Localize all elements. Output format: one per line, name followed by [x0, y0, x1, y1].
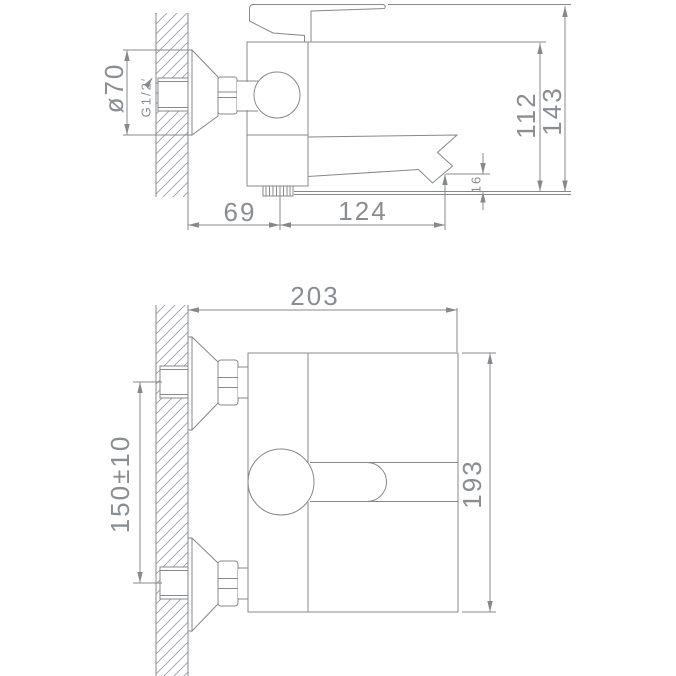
- union-nut-side: [218, 77, 237, 114]
- technical-drawing: ø70 G1/2′ 112 143 16 69 124 203 150±10 1…: [0, 0, 676, 676]
- dim-overall-height: 143: [539, 86, 565, 135]
- dim-body-height: 112: [513, 91, 539, 138]
- spout-side: [308, 135, 457, 183]
- dim-spout-end-height: 16: [470, 175, 483, 193]
- dim-overall-length: 193: [459, 459, 485, 508]
- dim-outlet-to-spout-tip: 124: [338, 198, 387, 224]
- pipe-nipple-side: [158, 78, 188, 111]
- dim-thread-size: G1/2′: [140, 77, 153, 118]
- plan-view: [133, 305, 496, 676]
- ball-joint: [254, 72, 300, 118]
- wall-section-plan: [156, 305, 188, 676]
- dim-inlet-spacing: 150±10: [107, 435, 133, 534]
- dim-escutcheon-diameter: ø70: [101, 63, 127, 114]
- shower-outlet-thread: [263, 186, 293, 196]
- escutcheon-side: [188, 50, 218, 135]
- lever-knob-plan: [248, 449, 314, 515]
- wall-section-side: [156, 13, 188, 230]
- dim-wall-to-spout-tip: 203: [290, 283, 339, 309]
- dim-wall-to-outlet: 69: [224, 199, 257, 225]
- lever-handle-side: [250, 5, 386, 43]
